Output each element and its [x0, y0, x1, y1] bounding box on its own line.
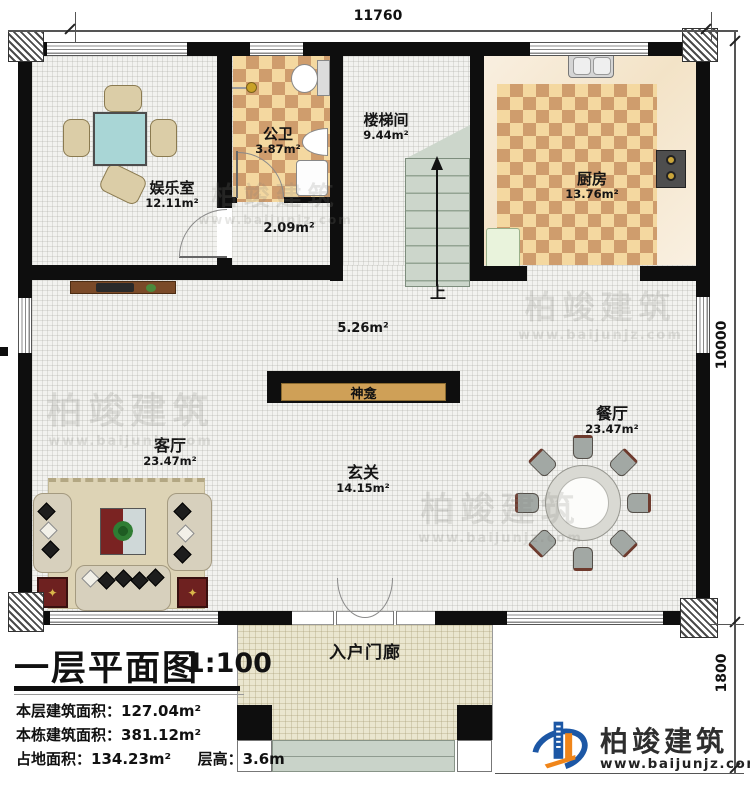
label-vestibule: 2.09m²	[249, 222, 329, 237]
dimension-porch-label: 1800	[714, 643, 730, 703]
height-value: 3.6m	[243, 750, 285, 768]
label-bathroom: 公卫 3.87m²	[238, 126, 318, 156]
room-name: 客厅	[115, 437, 225, 455]
room-area: 23.47m²	[557, 423, 667, 436]
area-row-building: 本栋建筑面积：381.12m²	[16, 724, 201, 745]
title-underline-thick	[14, 686, 240, 691]
wall-entertainment-vestibule-b	[217, 258, 232, 266]
label-stairwell: 楼梯间 9.44m²	[336, 112, 436, 142]
porch-edge-right	[492, 625, 493, 740]
shrine-label: 神龛	[350, 383, 376, 402]
toilet-bowl	[291, 64, 318, 93]
label-kitchen: 厨房 13.76m²	[542, 171, 642, 201]
room-name: 娱乐室	[112, 180, 232, 197]
porch-pillar-right	[457, 705, 492, 740]
room-name: 楼梯间	[336, 112, 436, 129]
area-row-floor: 本层建筑面积：127.04m²	[16, 700, 201, 721]
sink-bowl-right	[593, 57, 611, 75]
window-top-kitchen	[530, 42, 648, 56]
dimension-top-label: 11760	[338, 8, 418, 28]
title-underline-thin	[14, 694, 244, 695]
corner-column-bottom-right	[680, 598, 718, 638]
window-bottom-dining	[507, 611, 663, 625]
area-value: 134.23m²	[91, 750, 171, 768]
room-area: 3.87m²	[238, 143, 318, 156]
room-name: 餐厅	[557, 405, 667, 423]
room-area: 13.76m²	[542, 188, 642, 201]
plan-scale: 1:100	[186, 648, 272, 679]
floor-plan-canvas: 神龛 ✦ ✦	[0, 0, 750, 789]
coffee-table-plant	[113, 521, 133, 541]
sink-bowl-left	[573, 57, 591, 75]
shrine-cabinet: 神龛	[281, 383, 446, 401]
brand-name: 柏竣建筑	[600, 720, 728, 760]
washing-machine	[296, 160, 328, 196]
room-area: 12.11m²	[112, 197, 232, 210]
window-top-entertainment	[47, 42, 187, 56]
corner-column-top-left	[8, 30, 44, 62]
window-left-hall	[18, 298, 32, 353]
room-area: 9.44m²	[336, 129, 436, 142]
plan-title: 一层平面图	[14, 640, 199, 691]
area-label: 本层建筑面积：	[16, 702, 121, 720]
label-entertainment: 娱乐室 12.11m²	[112, 180, 232, 210]
dining-chair-e	[627, 493, 651, 513]
entrance-door-jamb-left	[333, 611, 337, 625]
wall-stairwell-kitchen	[470, 56, 484, 266]
stove-burner-bottom	[666, 171, 676, 181]
game-table	[93, 112, 147, 166]
area-value: 381.12m²	[121, 726, 201, 744]
end-table-star-icon: ✦	[47, 586, 57, 600]
porch-step-base-right	[457, 740, 492, 772]
game-chair-top	[104, 85, 142, 112]
end-table-star-icon: ✦	[187, 586, 197, 600]
dining-chair-w	[515, 493, 539, 513]
area-row-land: 占地面积：134.23m² 层高：3.6m	[16, 748, 285, 769]
window-bottom-living	[50, 611, 218, 625]
floor-drain	[246, 82, 257, 93]
room-area: 14.15m²	[313, 482, 413, 495]
label-living: 客厅 23.47m²	[115, 437, 225, 469]
dimension-line-right	[734, 31, 736, 628]
stove-burner-top	[666, 155, 676, 165]
dimension-right-label: 10000	[714, 315, 730, 375]
desk-plant	[146, 284, 156, 292]
room-area: 23.47m²	[115, 455, 225, 468]
area-value: 127.04m²	[121, 702, 201, 720]
room-name: 公卫	[238, 126, 318, 143]
game-chair-left	[63, 119, 90, 157]
stairs-up-label: 上	[426, 284, 450, 302]
stairs-direction-arrow	[431, 156, 443, 170]
dimension-ext-top-right	[711, 12, 712, 42]
corner-column-bottom-left	[8, 592, 44, 632]
dining-chair-s	[573, 547, 593, 571]
wall-bathroom-bottom-b	[284, 197, 330, 203]
brand-website: www.baijunjz.com	[600, 756, 750, 772]
toilet-tank	[317, 60, 330, 96]
porch-pillar-left	[237, 705, 272, 740]
entrance-door-jamb-right	[393, 611, 397, 625]
game-chair-right	[150, 119, 177, 157]
wall-interior-horizontal	[18, 265, 330, 280]
end-table-right: ✦	[177, 577, 208, 608]
dimension-ext-right-bottom	[710, 624, 744, 625]
window-top-bathroom	[250, 42, 303, 56]
wall-kitchen-bottom-right	[640, 266, 696, 281]
dimension-tick	[64, 23, 75, 34]
dimension-ext-top-left	[75, 12, 76, 42]
area-label: 本栋建筑面积：	[16, 726, 121, 744]
wall-kitchen-bottom-left	[470, 266, 527, 281]
stairs-direction-line	[436, 170, 438, 286]
room-name: 玄关	[313, 464, 413, 482]
window-right-hall	[696, 297, 710, 353]
wall-vestibule-stairwell	[330, 56, 343, 281]
wall-left-exterior-nub	[0, 347, 8, 356]
laptop	[96, 283, 134, 292]
label-dining: 餐厅 23.47m²	[557, 405, 667, 437]
dining-chair-n	[573, 435, 593, 459]
towel-bar	[231, 87, 247, 89]
porch-step-edge	[273, 756, 454, 757]
room-area: 5.26m²	[323, 322, 403, 337]
room-name: 入户门廊	[295, 644, 435, 664]
refrigerator	[486, 228, 520, 268]
label-foyer: 玄关 14.15m²	[313, 464, 413, 496]
label-up: 上	[426, 284, 450, 302]
area-label: 占地面积：	[16, 750, 91, 768]
brand-logo: 柏竣建筑 www.baijunjz.com	[528, 708, 743, 784]
label-porch: 入户门廊	[295, 644, 435, 664]
brand-logo-icon	[528, 714, 592, 778]
dining-table-top	[557, 477, 609, 529]
label-open-area: 5.26m²	[323, 322, 403, 337]
dimension-line-top	[8, 30, 738, 32]
porch-steps	[272, 740, 455, 772]
room-area: 2.09m²	[249, 222, 329, 237]
height-label: 层高：	[198, 750, 243, 768]
room-name: 厨房	[542, 171, 642, 188]
